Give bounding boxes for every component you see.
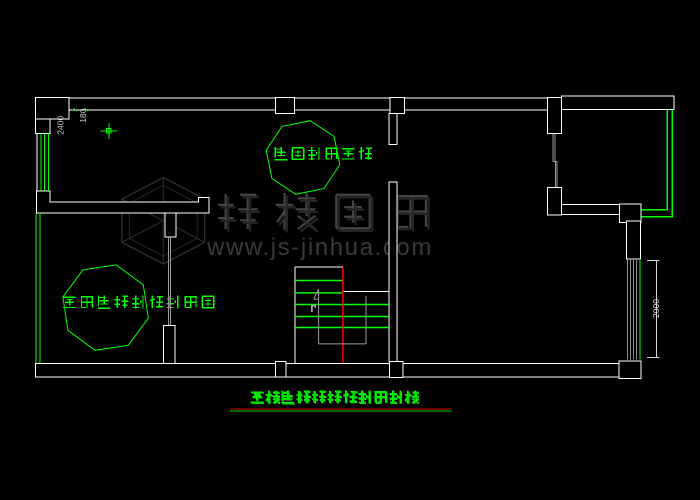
svg-text:2000: 2000	[651, 299, 661, 318]
svg-text:www.js-jinhua.com: www.js-jinhua.com	[206, 234, 433, 261]
svg-text:2400: 2400	[56, 116, 66, 135]
